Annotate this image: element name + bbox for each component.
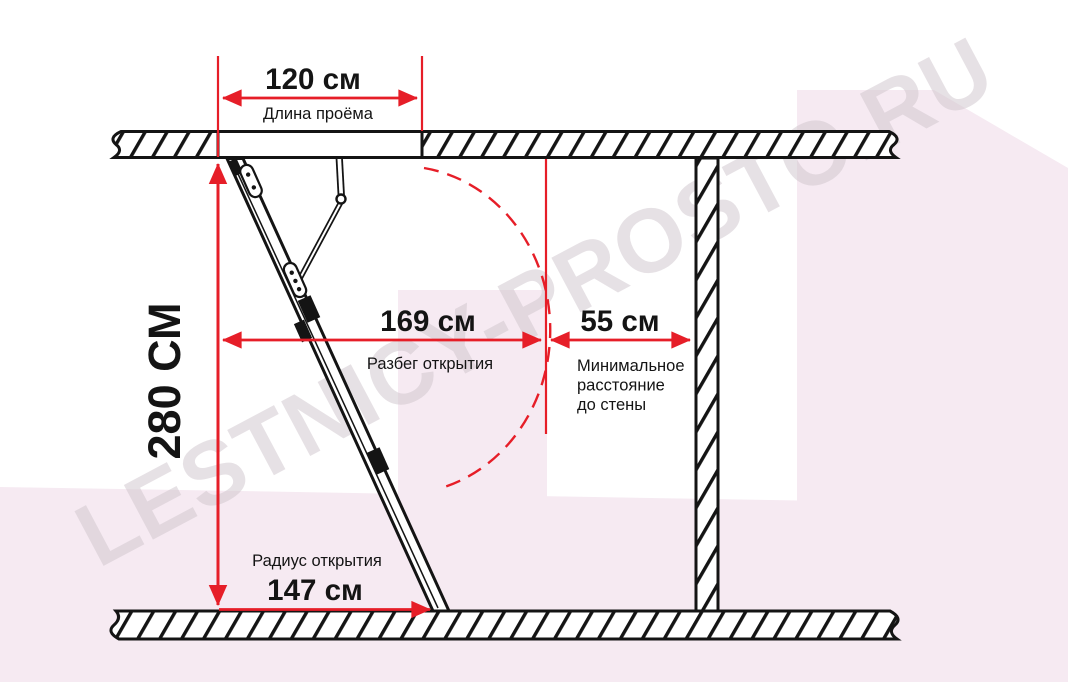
ceiling-opening (218, 132, 422, 158)
floor-structure (111, 611, 898, 639)
opening-radius-value: 147 см (267, 574, 363, 607)
ceiling-height-value: 280 СМ (139, 303, 190, 460)
opening-length-value: 120 см (265, 63, 361, 96)
opening-radius-label: Радиус открытия (252, 552, 382, 570)
hatch-rod-right (342, 158, 344, 195)
strut-clevis (337, 195, 346, 204)
opening-span-value: 169 см (380, 305, 476, 338)
hatch-rod-left (337, 158, 339, 195)
ceiling-left-slab (113, 132, 218, 158)
wall-structure (696, 158, 718, 611)
wall-distance-label-line3: до стены (577, 396, 646, 414)
attic-ladder-dimension-diagram: LESTNICY-PROSTO.RU (0, 0, 1068, 682)
ceiling-right-slab (422, 132, 897, 158)
opening-span-label: Разбег открытия (367, 355, 493, 373)
wall-distance-label-line1: Минимальное (577, 357, 685, 375)
wall-distance-value: 55 см (580, 305, 659, 338)
spring-strut-core (297, 202, 341, 284)
opening-length-label: Длина проёма (263, 105, 374, 123)
wall-distance-label-line2: расстояние (577, 377, 665, 395)
ceiling-structure (113, 132, 897, 158)
